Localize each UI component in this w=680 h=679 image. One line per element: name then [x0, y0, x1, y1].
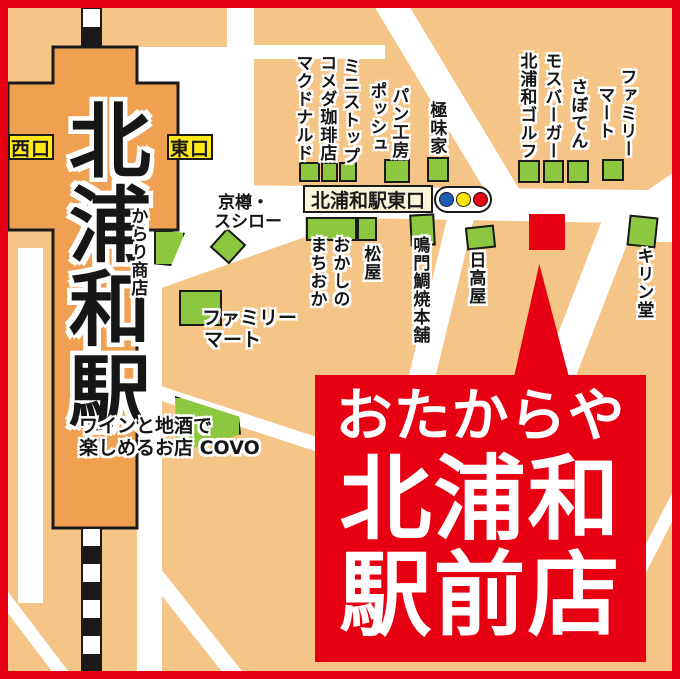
railway-track-south	[82, 528, 101, 671]
west-exit-label: 西口	[8, 134, 54, 160]
shop-label-kirindo: キリン堂	[634, 247, 652, 319]
shop-label-naruto-taiyaki: 鳴門鯛焼本舗	[410, 236, 428, 344]
shop-label-kyotaru-2: スシロー	[214, 213, 282, 231]
building-mos-burger	[543, 160, 564, 183]
building-kitaurawa-golf	[518, 160, 540, 183]
shop-label-pain-kobo-posh-1: パン工房	[389, 87, 407, 159]
traffic-light-yellow	[456, 192, 471, 207]
railway-track-north	[82, 8, 101, 47]
station-area-map: 西口 東口 北浦和駅 北浦和駅東口 マクドナルド コメダ珈琲店 ミニストップ パ…	[0, 0, 680, 679]
shop-label-okashi-no-machioka-1: おかしの	[330, 236, 348, 308]
traffic-light-icon	[434, 186, 492, 213]
shop-label-ministop: ミニストップ	[340, 57, 358, 165]
shop-label-pain-kobo-posh-2: ポッシュ	[367, 82, 385, 154]
shop-label-familymart-south-1: ファミリー	[202, 308, 297, 329]
shop-label-saboten: さぼてん	[568, 78, 586, 150]
shop-label-gokumiya: 極味家	[427, 101, 445, 155]
building-saboten	[567, 160, 589, 183]
store-banner: おたからや 北浦和 駅前店	[315, 375, 646, 662]
store-location-marker	[529, 214, 565, 250]
west-exit-text: 西口	[11, 134, 51, 161]
east-exit-text: 東口	[170, 134, 210, 161]
traffic-light-red	[473, 192, 488, 207]
building-ministop	[339, 162, 357, 182]
building-gokumiya	[427, 157, 449, 182]
shop-label-covo-1: ワインと地酒で	[79, 416, 212, 437]
shop-label-familymart-south-2: マート	[204, 330, 261, 351]
building-mcdonalds	[299, 162, 320, 182]
shop-label-kyotaru-1: 京樽・	[218, 194, 269, 212]
banner-store-name-1: 北浦和	[339, 452, 621, 548]
building-matsuya	[357, 217, 377, 241]
building-pain-kobo-posh	[384, 159, 410, 183]
building-kirindo	[626, 215, 658, 249]
shop-label-karari-shoten: からり商店	[128, 207, 146, 297]
building-komeda	[321, 162, 338, 182]
traffic-light-blue	[439, 192, 454, 207]
shop-label-kitaurawa-golf: 北浦和ゴルフ	[517, 52, 535, 160]
shop-label-hidakaya: 日高屋	[466, 251, 484, 305]
shop-label-mcdonalds: マクドナルド	[293, 54, 311, 162]
building-familymart-north	[602, 159, 624, 181]
shop-label-matsuya: 松屋	[361, 245, 379, 281]
banner-brand-name: おたからや	[336, 381, 626, 452]
building-hidakaya	[465, 225, 496, 251]
shop-label-familymart-north-1: ファミリー	[617, 68, 635, 158]
east-exit-label: 東口	[167, 134, 213, 160]
shop-label-familymart-north-2: マート	[595, 86, 613, 140]
shop-label-komeda-coffee: コメダ珈琲店	[317, 54, 335, 162]
east-exit-road-sign: 北浦和駅東口	[303, 185, 433, 213]
east-exit-road-sign-text: 北浦和駅東口	[311, 186, 425, 213]
shop-label-covo-2: 楽しめるお店 COVO	[79, 438, 260, 459]
shop-label-mos-burger: モスバーガー	[542, 52, 560, 160]
shop-label-okashi-no-machioka-2: まちおか	[307, 236, 325, 308]
banner-store-name-2: 駅前店	[339, 548, 621, 644]
